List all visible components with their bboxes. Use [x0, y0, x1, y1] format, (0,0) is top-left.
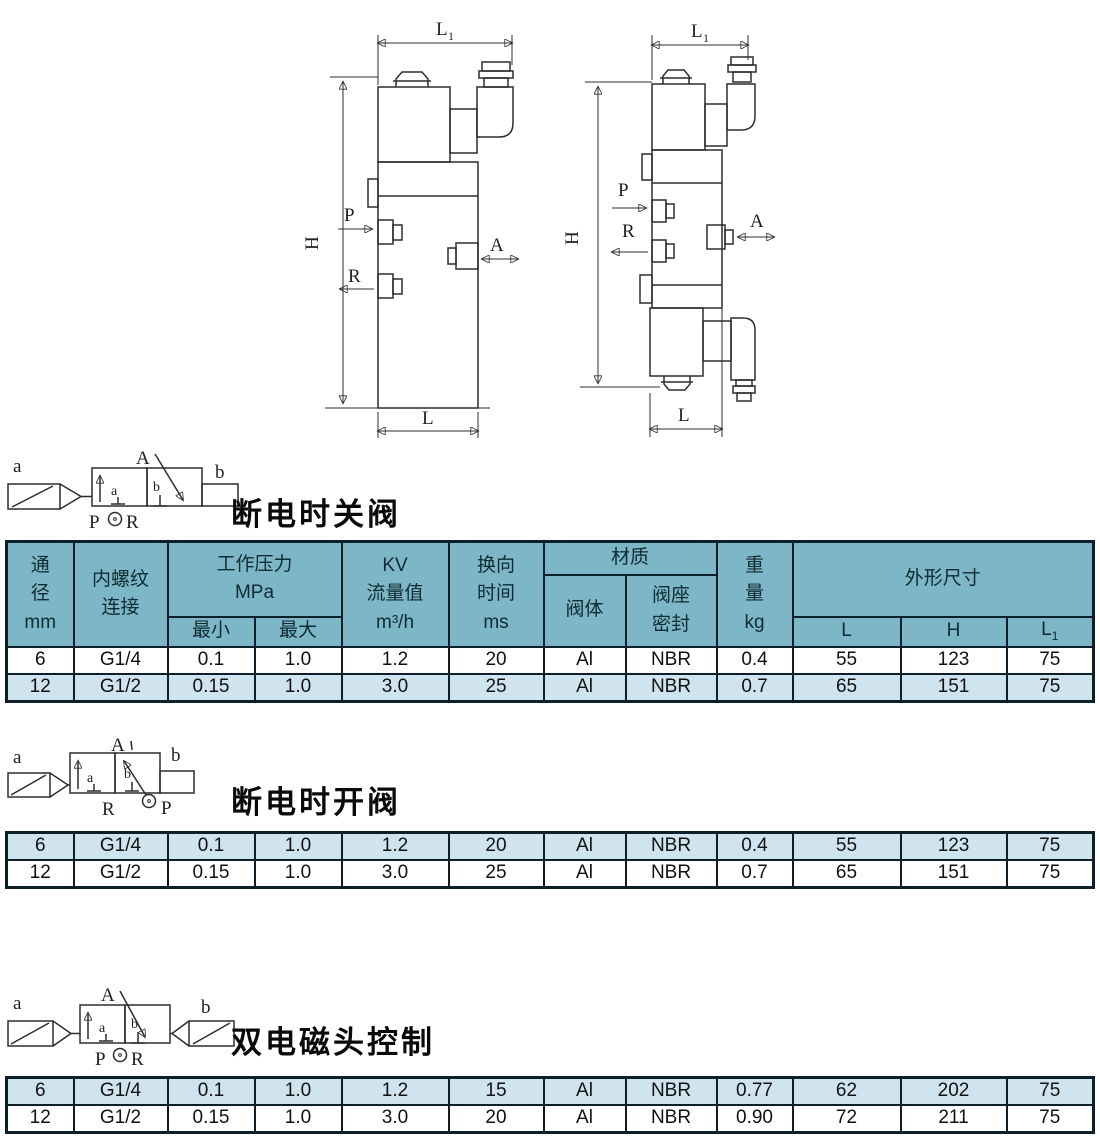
col-header-kv: KV流量值m³/h: [342, 542, 449, 647]
dim-label-h: H: [302, 236, 323, 250]
table-row: 6G1/4 0.11.0 1.215 AlNBR 0.7762 20275: [7, 1078, 1094, 1106]
position-b-label: b: [153, 480, 160, 495]
dim-label-l: L: [678, 405, 690, 426]
section-title-power-off-open: 断电时开阀: [231, 777, 401, 822]
port-label-r: R: [622, 221, 635, 242]
dim-label-l1-sub: 1: [703, 31, 709, 45]
section-title-double-solenoid: 双电磁头控制: [231, 1017, 435, 1062]
spec-table-power-off-open: 6G1/4 0.11.0 1.220 AlNBR 0.455 12375 12G…: [5, 831, 1095, 889]
dim-label-h: H: [562, 231, 583, 245]
col-header-dimensions: 外形尺寸: [793, 542, 1094, 617]
table-row: 12G1/2 0.151.0 3.025 AlNBR 0.765 15175: [7, 674, 1094, 702]
port-p-label: P: [161, 798, 172, 819]
spec-table-double-solenoid: 6G1/4 0.11.0 1.215 AlNBR 0.7762 20275 12…: [5, 1076, 1095, 1134]
col-header-weight: 重量kg: [717, 542, 793, 647]
solenoid-a-label: a: [13, 747, 22, 768]
col-header-dim-L: L: [793, 617, 901, 647]
section-title-power-off-closed: 断电时关阀: [231, 489, 401, 534]
port-label-a: A: [750, 211, 764, 232]
catalog-page: L 1 H P R A: [0, 0, 1100, 1144]
col-header-dim-H: H: [901, 617, 1007, 647]
col-header-bore: 通径mm: [7, 542, 74, 647]
col-header-seat-seal: 阀座密封: [626, 575, 717, 647]
port-a-label: A: [101, 985, 115, 1006]
table-row: 6G1/4 0.11.0 1.220 AlNBR 0.455 12375: [7, 647, 1094, 674]
port-p-label: P: [95, 1049, 106, 1070]
dim-label-l1: L: [436, 19, 448, 40]
port-label-r: R: [348, 266, 361, 287]
table-row: 12G1/2 0.151.0 3.025 AlNBR 0.765 15175: [7, 860, 1094, 888]
dim-label-l: L: [422, 408, 434, 429]
dimension-drawing-single-solenoid: L 1 H P R A: [280, 5, 550, 445]
col-header-pressure: 工作压力MPa: [168, 542, 342, 617]
port-a-label: A: [111, 735, 125, 756]
col-header-switch-time: 换向时间ms: [449, 542, 544, 647]
table-row: 6G1/4 0.11.0 1.220 AlNBR 0.455 12375: [7, 833, 1094, 861]
position-a-label: a: [111, 484, 118, 499]
solenoid-a-label: a: [13, 456, 22, 477]
port-r-label: R: [126, 512, 139, 533]
solenoid-b-label: b: [201, 997, 211, 1018]
col-header-pressure-min: 最小: [168, 617, 255, 647]
dim-label-l1-sub: 1: [448, 29, 454, 43]
port-p-label: P: [89, 512, 100, 533]
col-header-material: 材质: [544, 542, 717, 575]
dim-label-l1: L: [691, 21, 703, 42]
col-header-dim-L1: L1: [1007, 617, 1094, 647]
port-label-p: P: [344, 205, 355, 226]
solenoid-a-label: a: [13, 993, 22, 1014]
dimension-drawing-double-solenoid: L 1 H P R A: [560, 5, 860, 445]
spec-table-power-off-closed: 通径mm 内螺纹连接 工作压力MPa KV流量值m³/h 换向时间ms 材质 重…: [5, 540, 1095, 703]
col-header-thread: 内螺纹连接: [74, 542, 168, 647]
valve-symbol-power-off-open: a b a b A P R: [5, 735, 255, 825]
col-header-pressure-max: 最大: [255, 617, 342, 647]
port-label-a: A: [490, 235, 504, 256]
valve-symbol-double-solenoid: a b a b A P R: [5, 985, 255, 1073]
position-a-label: a: [99, 1021, 106, 1036]
port-a-label: A: [136, 448, 150, 469]
solenoid-b-label: b: [171, 745, 181, 766]
port-r-label: R: [102, 799, 115, 820]
solenoid-b-label: b: [215, 462, 225, 483]
valve-symbol-power-off-closed: a b a b A P R: [5, 448, 255, 536]
position-a-label: a: [87, 771, 94, 786]
table-row: 12G1/2 0.151.0 3.020 AlNBR 0.9072 21175: [7, 1105, 1094, 1133]
port-label-p: P: [618, 180, 629, 201]
col-header-valve-body: 阀体: [544, 575, 626, 647]
port-r-label: R: [131, 1049, 144, 1070]
